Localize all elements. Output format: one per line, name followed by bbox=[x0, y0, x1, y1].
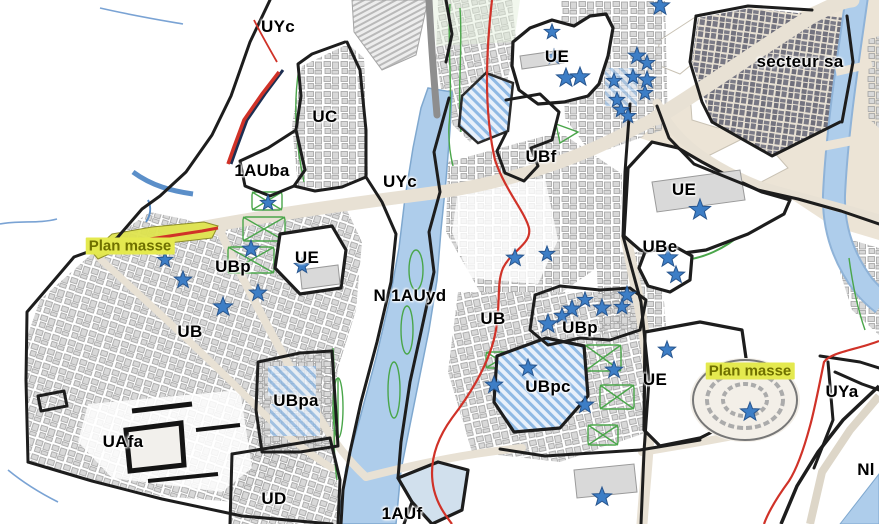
hatched-zone bbox=[268, 366, 316, 396]
zoning-map[interactable]: UYcUC1AUbaUYcUEUBfsecteur saUEUBpUEUBN 1… bbox=[0, 0, 879, 524]
estate-circle bbox=[690, 358, 800, 442]
hatched-zone bbox=[270, 404, 320, 436]
map-canvas bbox=[0, 0, 879, 524]
zone-ube bbox=[639, 246, 692, 292]
building bbox=[574, 464, 637, 498]
